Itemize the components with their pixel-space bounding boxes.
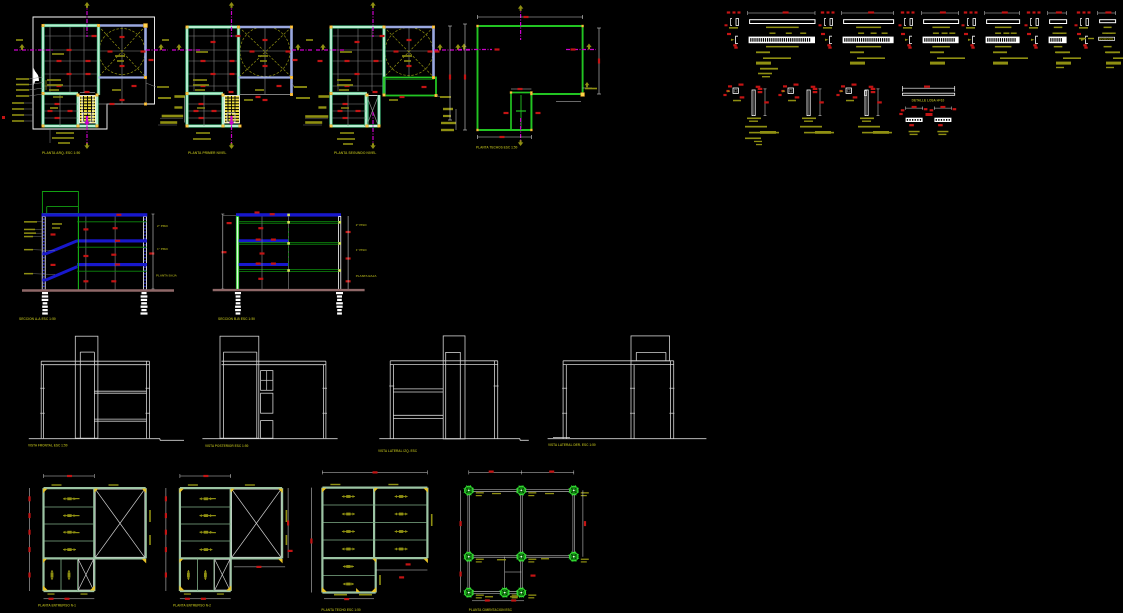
svg-text:VISTA FRONTAL ESC 1:50: VISTA FRONTAL ESC 1:50 [28,444,68,448]
svg-text:PLANTA TECHO ESC 1:50: PLANTA TECHO ESC 1:50 [321,608,361,612]
svg-text:1° PISO: 1° PISO [157,247,169,251]
svg-text:SECCION A-A ESC 1:50: SECCION A-A ESC 1:50 [19,317,56,321]
svg-text:VISTA LATERAL DER. ESC 1:50: VISTA LATERAL DER. ESC 1:50 [548,443,596,447]
svg-text:1° PISO: 1° PISO [356,248,368,252]
svg-text:PLANTA ENTREPISO N-2: PLANTA ENTREPISO N-2 [173,604,211,608]
svg-text:VISTA POSTERIOR ESC 1:50: VISTA POSTERIOR ESC 1:50 [205,444,249,448]
svg-text:PLANTA ARQ. ESC 1:50: PLANTA ARQ. ESC 1:50 [42,151,80,155]
svg-text:2° PISO: 2° PISO [356,223,368,227]
svg-text:DETALLE LOSA H=10: DETALLE LOSA H=10 [912,99,945,103]
svg-text:PLANTA BAJA: PLANTA BAJA [156,274,178,278]
svg-text:PLANTA TECHOS ESC 1:50: PLANTA TECHOS ESC 1:50 [476,146,518,150]
svg-text:2° PISO: 2° PISO [157,224,169,228]
svg-text:PLANTA CIMENTACION ESC: PLANTA CIMENTACION ESC [469,608,513,612]
svg-text:PLANTA PRIMER NIVEL: PLANTA PRIMER NIVEL [188,151,226,155]
svg-text:SECCION B-B ESC 1:50: SECCION B-B ESC 1:50 [218,317,255,321]
svg-text:PLANTA BAJA: PLANTA BAJA [356,274,378,278]
svg-text:PLANTA SEGUNDO NIVEL: PLANTA SEGUNDO NIVEL [334,151,376,155]
svg-text:VISTA LATERAL IZQ. ESC: VISTA LATERAL IZQ. ESC [378,449,418,453]
svg-text:PLANTA ENTREPISO N-1: PLANTA ENTREPISO N-1 [38,604,76,608]
